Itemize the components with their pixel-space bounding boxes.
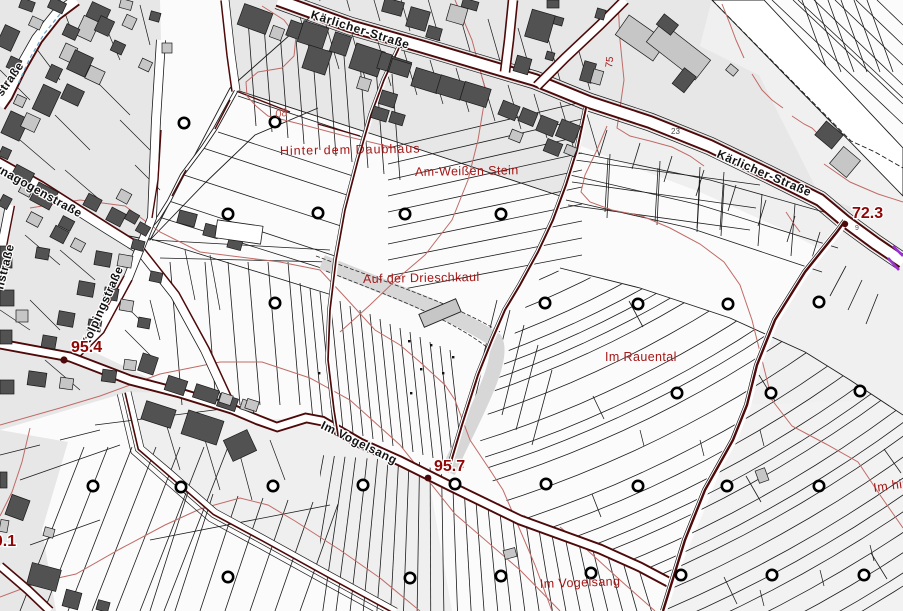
svg-text:Auf der Drieschkaul: Auf der Drieschkaul xyxy=(363,270,480,286)
svg-text:75: 75 xyxy=(604,56,616,69)
svg-text:Im Vogelsang: Im Vogelsang xyxy=(540,574,621,591)
svg-text:95.4: 95.4 xyxy=(71,339,102,356)
svg-text:Am-Weißen Stein: Am-Weißen Stein xyxy=(415,163,519,179)
svg-text:90.1: 90.1 xyxy=(0,533,16,550)
svg-text:95.7: 95.7 xyxy=(434,458,465,475)
svg-text:Hinter dem Daubhaus: Hinter dem Daubhaus xyxy=(280,142,421,158)
svg-text:23: 23 xyxy=(671,127,680,136)
svg-text:9: 9 xyxy=(855,225,859,232)
svg-text:72.3: 72.3 xyxy=(852,205,883,222)
svg-text:Im Rauental: Im Rauental xyxy=(605,350,677,364)
